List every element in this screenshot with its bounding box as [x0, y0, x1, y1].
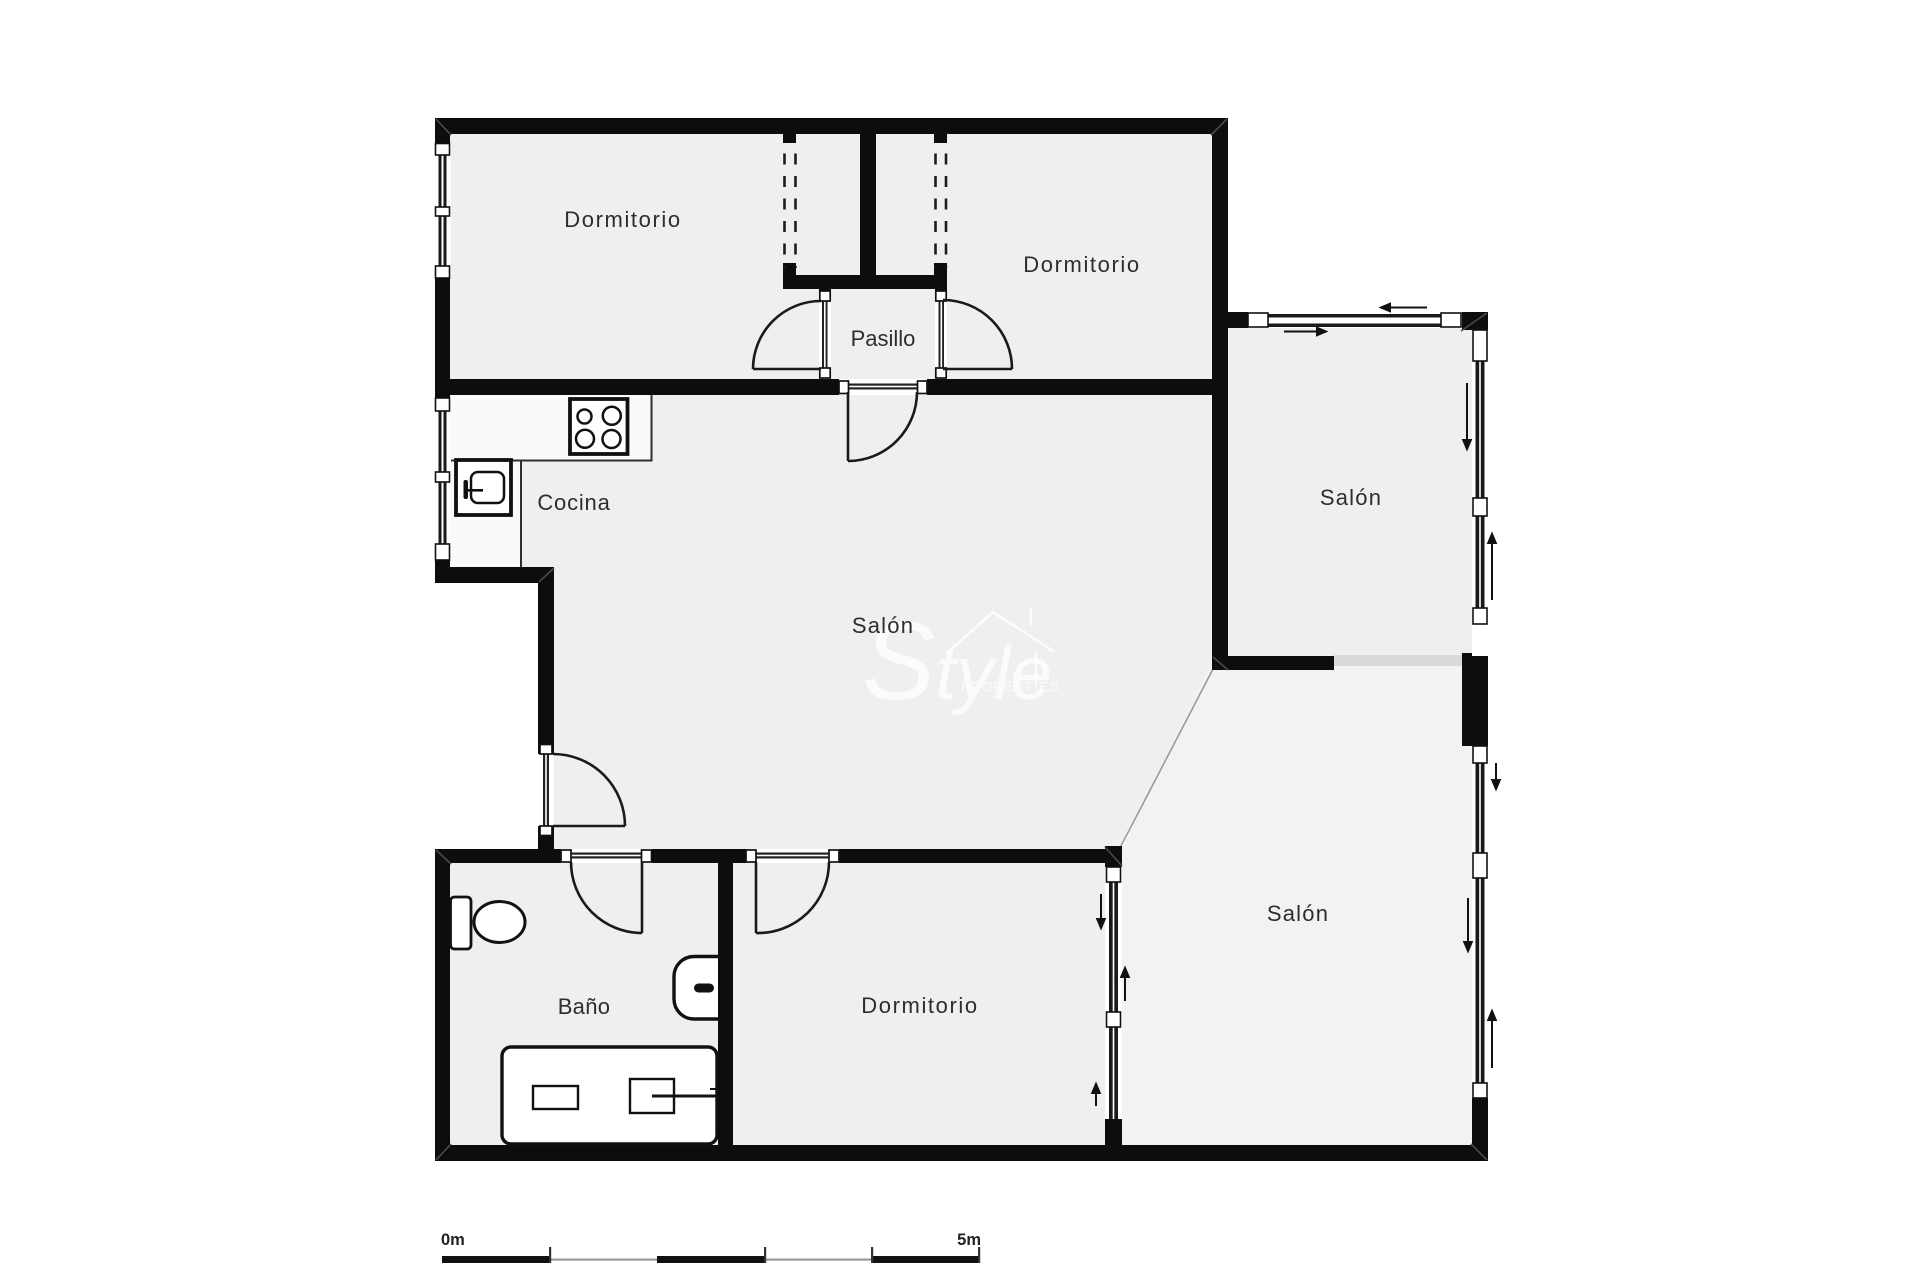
svg-text:Baño: Baño [558, 994, 611, 1019]
svg-text:Salón: Salón [1320, 485, 1382, 510]
svg-text:PROPERTIES: PROPERTIES [961, 679, 1060, 694]
svg-text:Salón: Salón [852, 613, 914, 638]
svg-text:Dormitorio: Dormitorio [861, 993, 978, 1018]
svg-text:Dormitorio: Dormitorio [564, 207, 681, 232]
svg-text:5m: 5m [957, 1231, 981, 1249]
svg-text:0m: 0m [441, 1231, 465, 1249]
svg-text:Cocina: Cocina [537, 490, 610, 515]
svg-text:Salón: Salón [1267, 901, 1329, 926]
svg-text:Dormitorio: Dormitorio [1023, 252, 1140, 277]
svg-text:Pasillo: Pasillo [851, 326, 916, 351]
